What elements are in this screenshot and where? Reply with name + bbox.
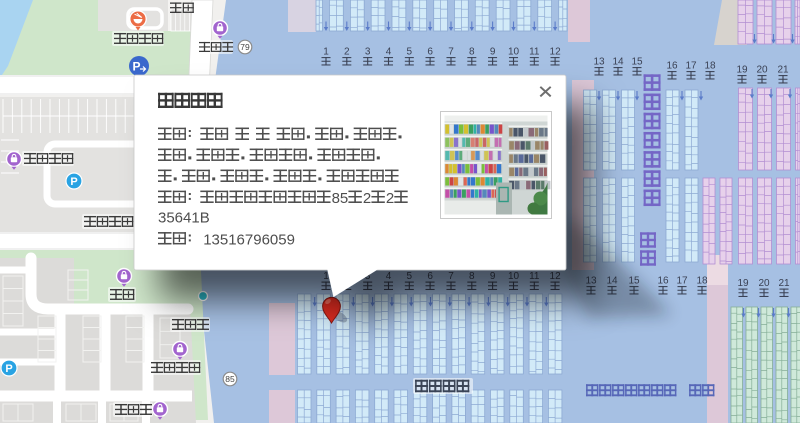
svg-text:5: 5 [407,271,413,282]
svg-text:1: 1 [323,47,329,58]
svg-text:3: 3 [365,47,371,58]
svg-text:12: 12 [550,271,562,282]
svg-text:5: 5 [407,47,413,58]
svg-text:9: 9 [490,47,496,58]
svg-text:19: 19 [737,278,749,289]
svg-text:11: 11 [529,47,540,58]
svg-text:2: 2 [344,47,350,58]
svg-text:10: 10 [508,271,520,282]
svg-text:21: 21 [778,278,790,289]
svg-text:85: 85 [332,190,349,207]
svg-text:12: 12 [550,47,562,58]
svg-text:13: 13 [593,57,605,68]
svg-text:P: P [70,176,77,188]
svg-text:2: 2 [386,190,394,207]
svg-text:16: 16 [657,276,669,287]
svg-text:7: 7 [448,47,454,58]
svg-text:6: 6 [427,271,433,282]
svg-text:79: 79 [240,42,250,52]
svg-text:17: 17 [676,276,688,287]
svg-text:19: 19 [736,65,748,76]
svg-text:20: 20 [756,65,768,76]
svg-text:8: 8 [469,47,475,58]
svg-text:35641B: 35641B [158,210,210,227]
svg-text:4: 4 [386,271,392,282]
svg-text:7: 7 [448,271,454,282]
svg-text:13516796059: 13516796059 [203,232,295,249]
svg-text:6: 6 [427,47,433,58]
svg-text:2: 2 [363,190,371,207]
svg-text:20: 20 [758,278,770,289]
svg-text:9: 9 [490,271,496,282]
svg-text:18: 18 [696,276,708,287]
svg-text:85: 85 [225,374,235,384]
svg-text:15: 15 [631,57,643,68]
svg-text:P: P [5,363,12,375]
svg-text:18: 18 [704,61,716,72]
svg-text:4: 4 [386,47,392,58]
svg-text:8: 8 [469,271,475,282]
svg-text:11: 11 [529,271,540,282]
svg-text:P: P [132,60,140,74]
svg-text:21: 21 [777,65,789,76]
svg-text:14: 14 [612,57,624,68]
svg-text:17: 17 [685,61,697,72]
svg-text:10: 10 [508,47,520,58]
svg-text:16: 16 [666,61,678,72]
